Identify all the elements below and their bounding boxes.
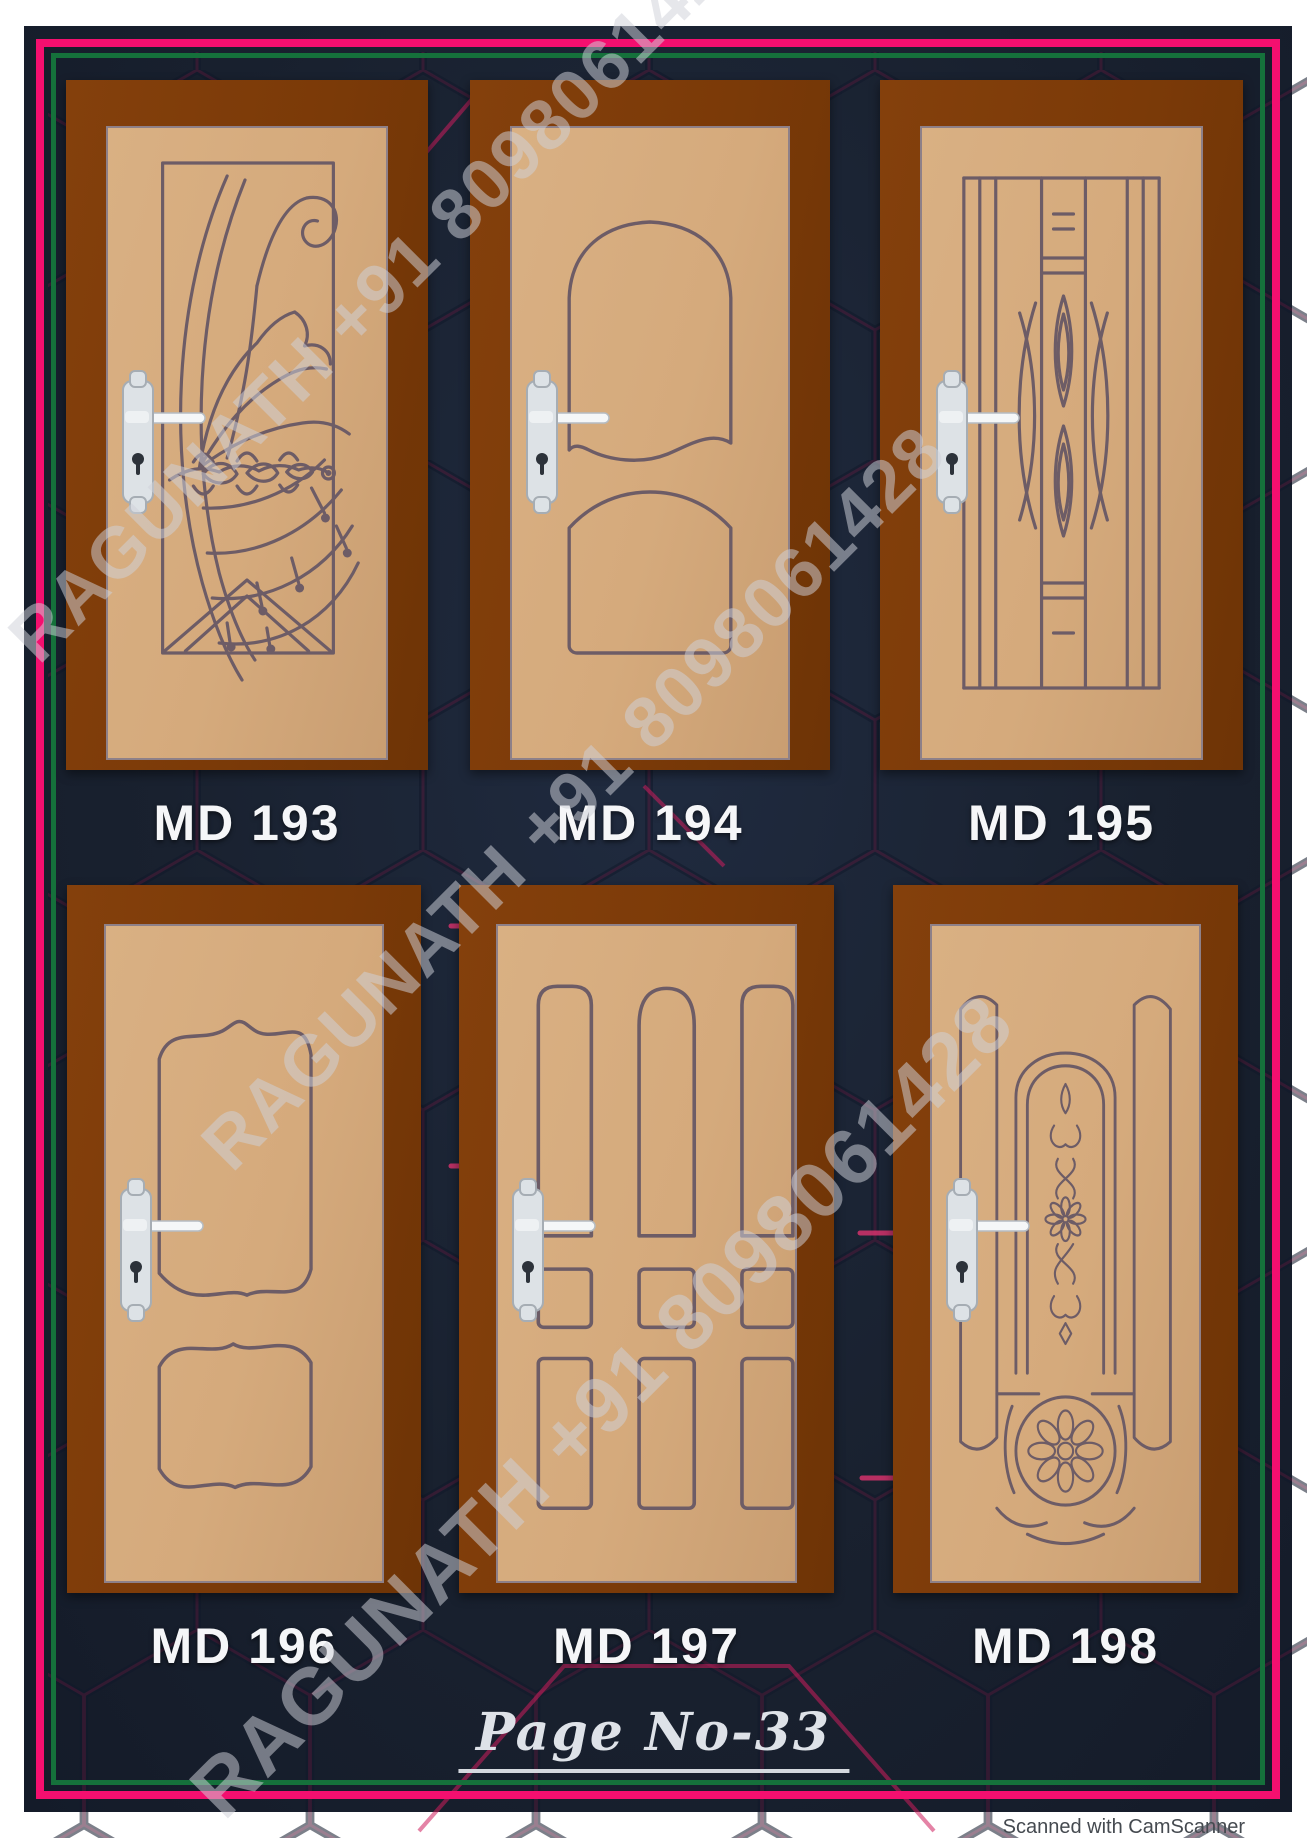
- door-frame: [459, 885, 834, 1593]
- scanner-credit: Scanned with CamScanner: [1003, 1816, 1245, 1839]
- door-handle: [925, 367, 1025, 517]
- door-slab: [510, 126, 790, 760]
- door-card-md-195: MD 195: [880, 80, 1243, 860]
- door-slab: [920, 126, 1203, 760]
- door-card-md-196: MD 196: [67, 885, 421, 1685]
- catalog-page: MD 193 MD 194: [0, 0, 1307, 1847]
- door-handle: [109, 1175, 209, 1325]
- door-slab: [104, 924, 384, 1583]
- door-slab: [496, 924, 797, 1583]
- door-card-md-197: MD 197: [459, 885, 834, 1685]
- door-label: MD 196: [67, 1617, 421, 1675]
- door-label: MD 194: [470, 794, 830, 852]
- door-frame: [66, 80, 428, 770]
- door-card-md-194: MD 194: [470, 80, 830, 860]
- door-label: MD 197: [459, 1617, 834, 1675]
- door-slab: [930, 924, 1201, 1583]
- door-frame: [880, 80, 1243, 770]
- door-card-md-193: MD 193: [66, 80, 428, 860]
- door-handle: [501, 1175, 601, 1325]
- door-frame: [893, 885, 1238, 1593]
- door-label: MD 193: [66, 794, 428, 852]
- door-handle: [935, 1175, 1035, 1325]
- door-slab: [106, 126, 388, 760]
- door-frame: [470, 80, 830, 770]
- door-card-md-198: MD 198: [893, 885, 1238, 1685]
- door-label: MD 195: [880, 794, 1243, 852]
- door-handle: [111, 367, 211, 517]
- door-label: MD 198: [893, 1617, 1238, 1675]
- page-number: Page No-33: [458, 1702, 849, 1773]
- door-frame: [67, 885, 421, 1593]
- door-handle: [515, 367, 615, 517]
